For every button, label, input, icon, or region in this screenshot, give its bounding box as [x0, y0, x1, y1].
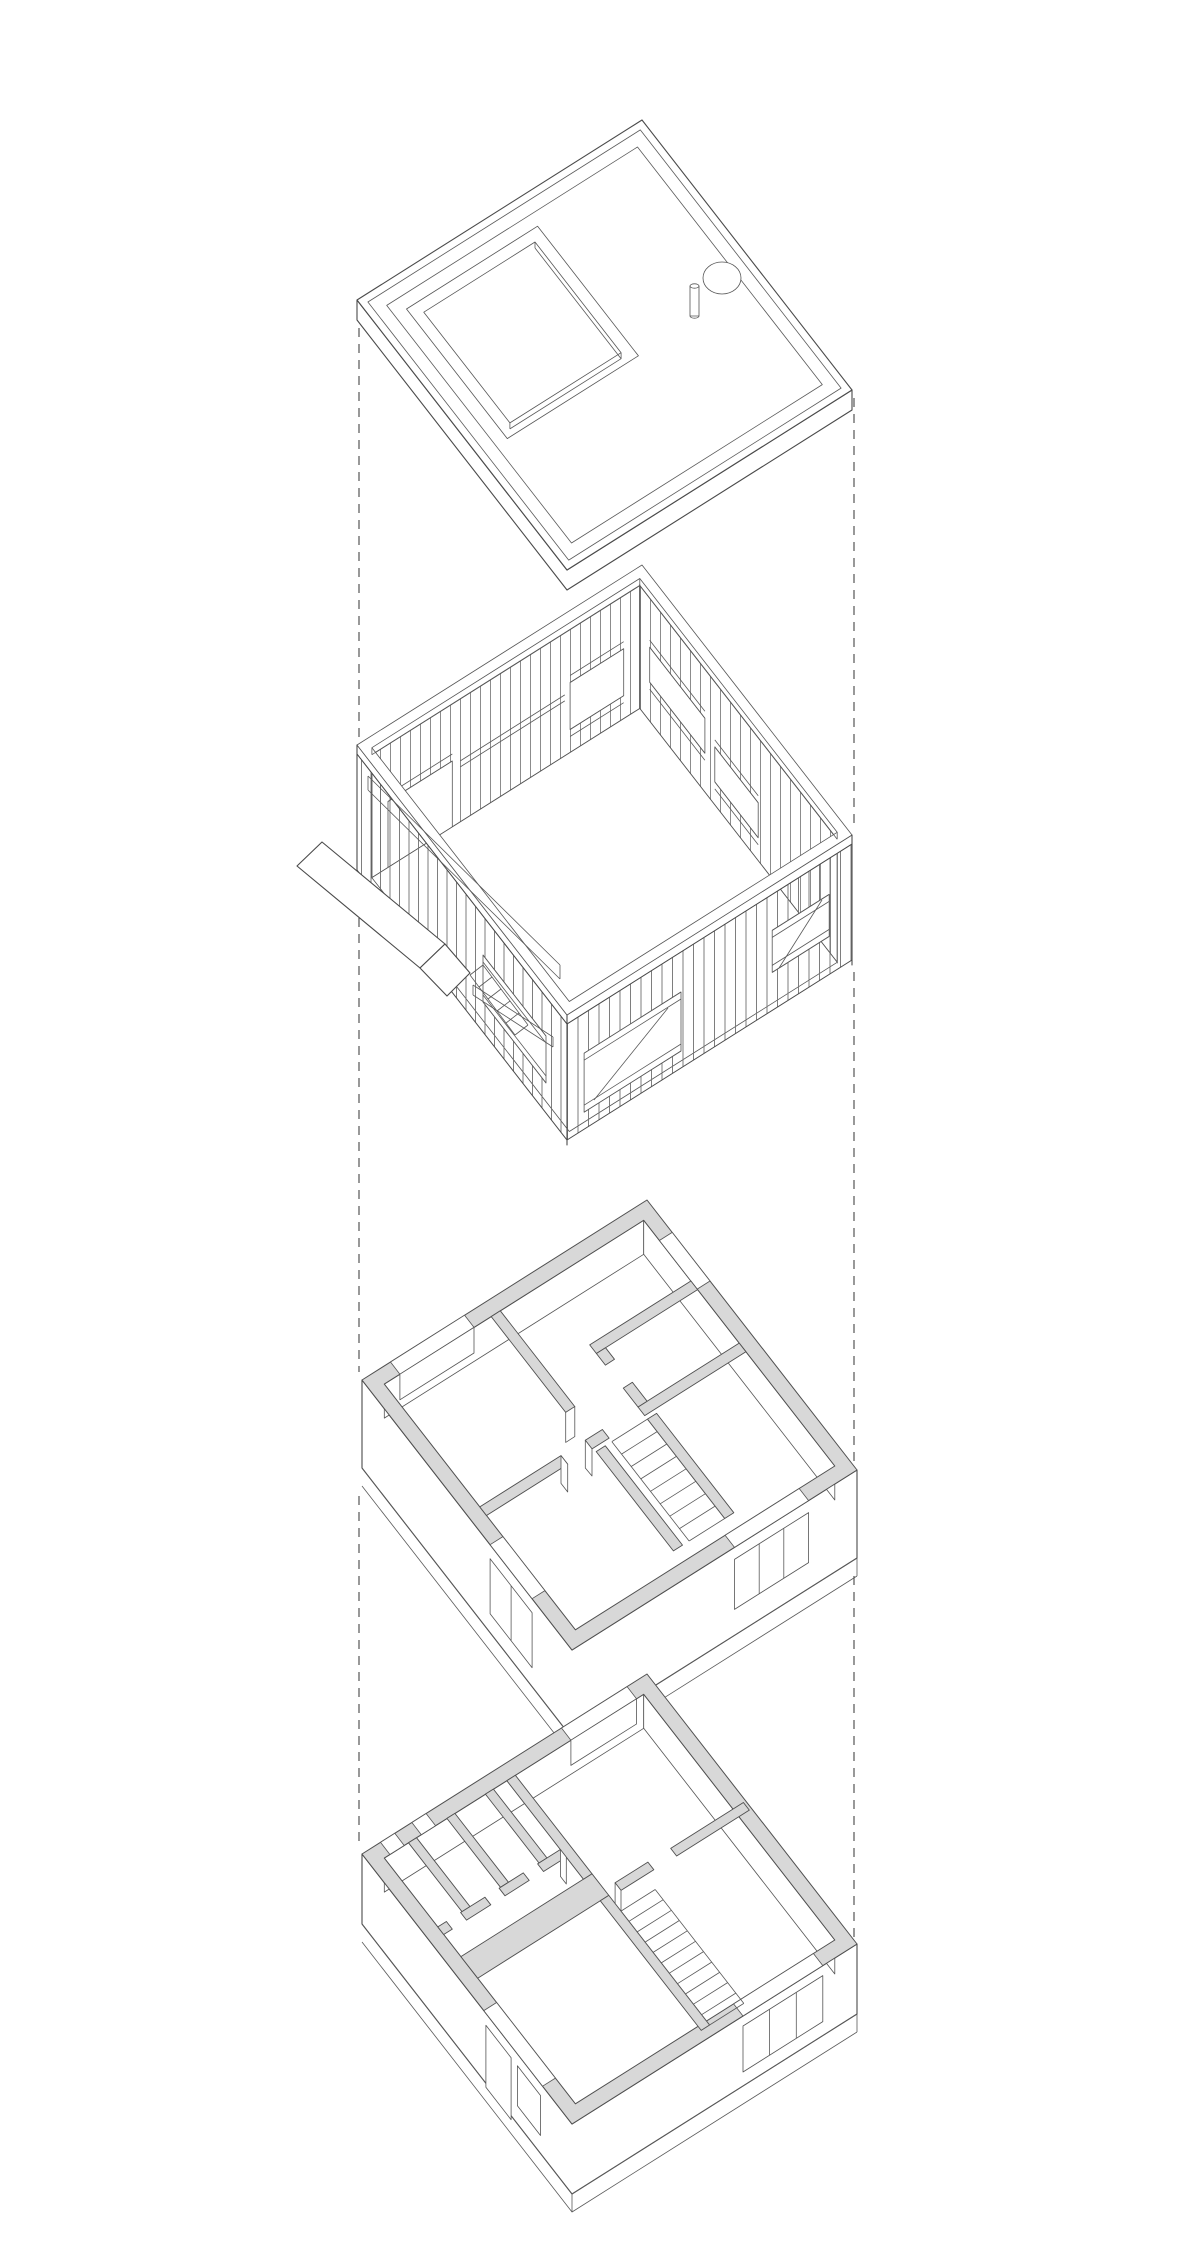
- ground-floor-plan: [362, 1674, 857, 2212]
- exploded-axonometric-diagram: [0, 0, 1193, 2248]
- upper-framing-level: [297, 565, 852, 1145]
- drawing-canvas: [0, 0, 1193, 2248]
- ground-floor-stair: [600, 1890, 744, 2031]
- vent-pipe: [690, 284, 699, 318]
- roof-plan: [357, 120, 852, 590]
- ground-thick-wall-band: [461, 1874, 609, 1978]
- skylight-dome: [703, 262, 741, 294]
- upper-interior-face-back-left: [384, 1220, 643, 1418]
- upper-interior-face-back-right: [644, 1220, 835, 1500]
- bathroom-wall-a: [590, 1281, 698, 1354]
- upper-floor-plan: [362, 1200, 857, 1756]
- ground-interior-face-back-right: [644, 1694, 835, 1974]
- bathroom-wall-b2: [623, 1382, 647, 1407]
